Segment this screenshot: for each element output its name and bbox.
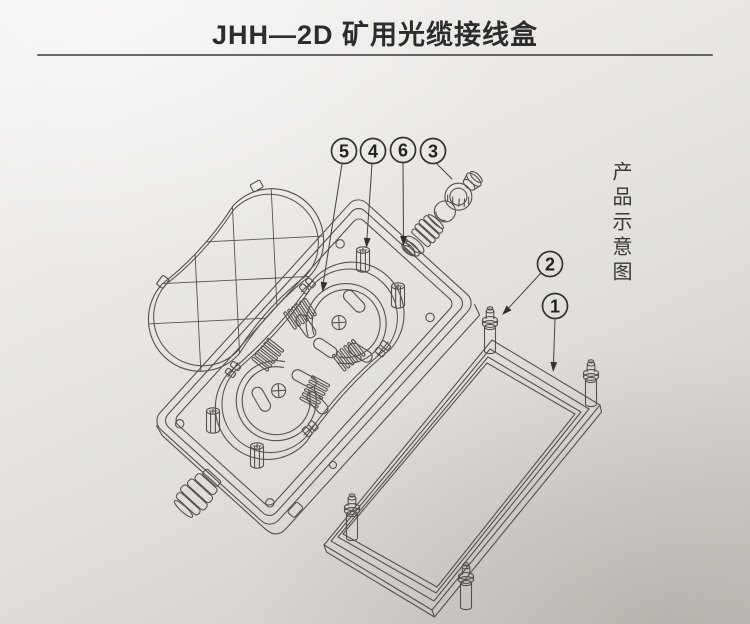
leader-line-6: [403, 163, 404, 243]
callout-6-label: 6: [398, 141, 408, 161]
tray-screw: [269, 381, 289, 401]
frame-corner-bolt: [459, 563, 474, 610]
callout-3: 3: [421, 139, 446, 164]
standoff-post: [357, 247, 370, 272]
gland-clamp-body: [410, 211, 447, 248]
callout-1-label: 1: [550, 297, 560, 317]
exploded-view-diagram: 5 4 6 3 2 1: [0, 0, 750, 624]
splice-sleeve: [312, 336, 340, 360]
leader-arrowhead: [550, 362, 557, 372]
frame-hole: [330, 462, 337, 469]
leader-line-3: [436, 163, 452, 179]
lid-tab: [250, 180, 264, 192]
callout-5-label: 5: [339, 142, 349, 162]
document-page: JHH—2D 矿用光缆接线盒 产品示意图: [0, 0, 750, 624]
callout-5: 5: [332, 139, 357, 164]
floor-hole: [424, 311, 436, 323]
splice-sleeve: [341, 288, 367, 314]
leader-line-2: [504, 273, 541, 313]
splice-holder-comb: [332, 339, 365, 371]
callouts: 5 4 6 3 2 1: [332, 138, 568, 319]
tray-screw: [329, 313, 349, 333]
splice-sleeve: [290, 368, 318, 390]
standoff-post: [207, 408, 220, 433]
callout-3-label: 3: [428, 142, 438, 162]
cable-gland-exploded: [397, 166, 488, 262]
frame-corner-bolt: [345, 494, 360, 541]
floor-hole: [264, 497, 276, 509]
splice-sleeve: [250, 385, 272, 413]
side-latch-tab: [287, 502, 303, 518]
main-box-body: [121, 195, 485, 571]
standoff-post: [251, 443, 264, 468]
callout-6: 6: [391, 138, 416, 163]
callout-4-label: 4: [368, 142, 378, 162]
leader-lines: [323, 163, 556, 369]
callout-2-label: 2: [545, 255, 555, 275]
tray-outline: [194, 241, 426, 481]
frame-opening: [343, 363, 575, 587]
base-frame: [324, 307, 602, 617]
callout-4: 4: [361, 139, 386, 164]
tray-latch: [224, 360, 242, 380]
lid-tab: [156, 275, 169, 289]
leader-line-1: [553, 319, 555, 369]
floor-hole: [334, 238, 346, 250]
callout-1: 1: [543, 294, 568, 319]
callout-2: 2: [538, 252, 563, 277]
frame-corner-bolt: [483, 307, 498, 354]
tray-inner-line: [202, 249, 417, 472]
lid-cover: [11, 59, 461, 501]
standoff-post: [392, 283, 405, 308]
cable-gland-left: [170, 464, 226, 521]
lid-grid-ribs: [11, 59, 461, 501]
